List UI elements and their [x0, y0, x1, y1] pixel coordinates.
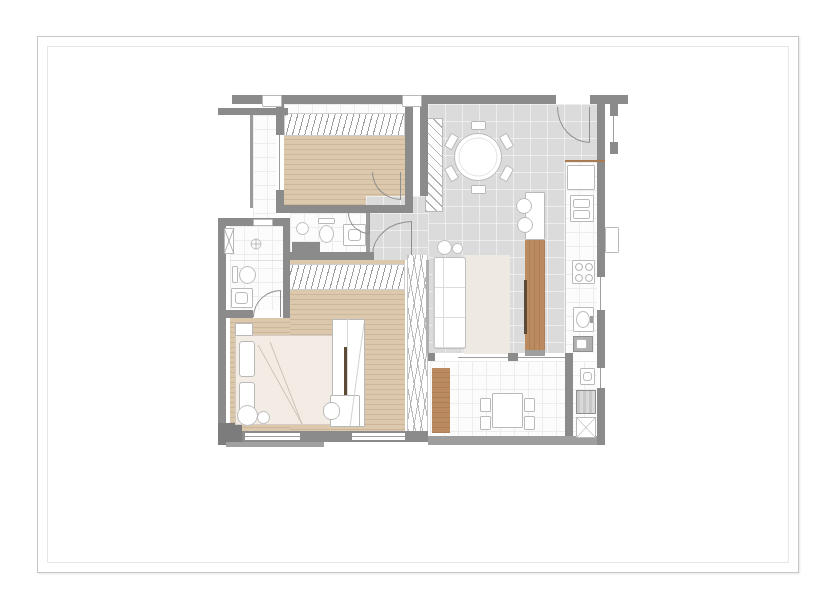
- entry-closet-counter: [567, 165, 595, 190]
- dark-counter-inner: [576, 339, 587, 349]
- wall-bedroom2-south: [276, 205, 413, 213]
- window-master-bottom-2: [352, 433, 405, 440]
- master-wardrobe-hatch: [285, 264, 405, 290]
- wall-bottom-understep: [226, 442, 324, 447]
- kitchen-counter-front-line: [565, 162, 566, 353]
- balcony-chair: [480, 398, 491, 412]
- island-base: [525, 350, 545, 356]
- wall-laundry-west: [565, 353, 573, 445]
- toilet-bowl-bath: [319, 225, 334, 243]
- pilaster-top-2: [402, 95, 422, 107]
- cooktop: [572, 260, 595, 284]
- page-background: [0, 0, 835, 612]
- laundry-cabinet-inner: [583, 372, 592, 381]
- wall-bedroom2-east: [405, 104, 413, 208]
- window-laundry-east: [597, 368, 605, 388]
- dining-table: [454, 133, 502, 181]
- duct-shaft: [224, 228, 234, 254]
- wall-ensuite-south-b: [283, 310, 290, 318]
- balcony-table: [492, 393, 523, 428]
- desk-chair: [323, 402, 340, 420]
- bed-pillow: [239, 341, 255, 377]
- rail-glass-1: [458, 354, 508, 360]
- ensuite-vanity-basin: [235, 292, 248, 304]
- window-kitchen-east: [597, 277, 605, 310]
- window-master-bottom-1: [245, 433, 300, 440]
- bar-stool: [516, 198, 532, 214]
- wall-right-c: [597, 388, 605, 445]
- floor-exterior-courtyard: [253, 115, 276, 218]
- sofa: [433, 257, 466, 349]
- balcony-deck-boards: [432, 368, 450, 433]
- wall-bedroom2-west-b: [276, 190, 284, 205]
- fridge-door-2: [573, 210, 590, 219]
- wall-bedroom2-west-a: [276, 104, 284, 135]
- toilet-tank-bath: [318, 218, 335, 224]
- entry-door-opening: [556, 95, 590, 104]
- balcony-chair: [480, 416, 491, 430]
- kitchen-sink-bowl: [576, 311, 590, 328]
- wall-entry-stub-a: [610, 104, 618, 116]
- pouf-large: [237, 405, 258, 426]
- balcony-chair: [524, 416, 535, 430]
- sliding-wardrobe-partition: [407, 255, 428, 432]
- window-bedroom2-west: [276, 135, 284, 190]
- pilaster-top-1: [262, 95, 282, 107]
- kitchen-faucet: [590, 316, 593, 323]
- wall-entry-closet: [420, 104, 428, 196]
- bedroom2-wardrobe-hatch: [284, 113, 405, 136]
- island-wood-column: [525, 240, 545, 352]
- kitchen-counter-edge: [565, 160, 605, 162]
- bar-stool: [517, 217, 533, 233]
- rail-pier-2: [508, 353, 518, 361]
- ensuite-vent-box: [253, 219, 273, 226]
- wall-ensuite-east: [283, 221, 290, 318]
- pouf-small: [257, 411, 270, 424]
- nightstand: [235, 323, 253, 336]
- tv-master: [344, 347, 347, 399]
- bath-wall-sink: [296, 222, 309, 235]
- living-rug: [464, 255, 510, 355]
- side-table: [437, 240, 452, 255]
- exterior-sill-east: [605, 227, 619, 253]
- laundry-tank: [576, 417, 596, 438]
- balcony-chair: [524, 398, 535, 412]
- wall-entry-stub-b: [610, 142, 618, 154]
- wall-bathroom-south: [283, 252, 374, 260]
- wall-thin-west: [250, 115, 253, 208]
- wall-right-b: [597, 310, 605, 368]
- rail-pier-1: [428, 353, 435, 361]
- shower-zone-line: [230, 260, 283, 261]
- window-entry-stub: [610, 116, 618, 142]
- wall-right-a: [597, 104, 605, 277]
- wall-ensuite-south-a: [218, 310, 253, 318]
- washing-machine: [576, 390, 596, 414]
- fridge-door-1: [573, 199, 590, 208]
- toilet-tank-ensuite: [232, 266, 238, 283]
- tv-living: [524, 280, 527, 334]
- bath-dark-counter: [292, 242, 320, 253]
- toilet-bowl-ensuite: [239, 266, 256, 284]
- wall-balcony-bottom: [428, 436, 597, 445]
- floor-plan: [218, 95, 628, 445]
- side-table: [452, 243, 463, 254]
- dining-chair: [471, 121, 486, 130]
- dining-chair: [471, 185, 486, 194]
- wall-living-west-thin: [426, 260, 429, 353]
